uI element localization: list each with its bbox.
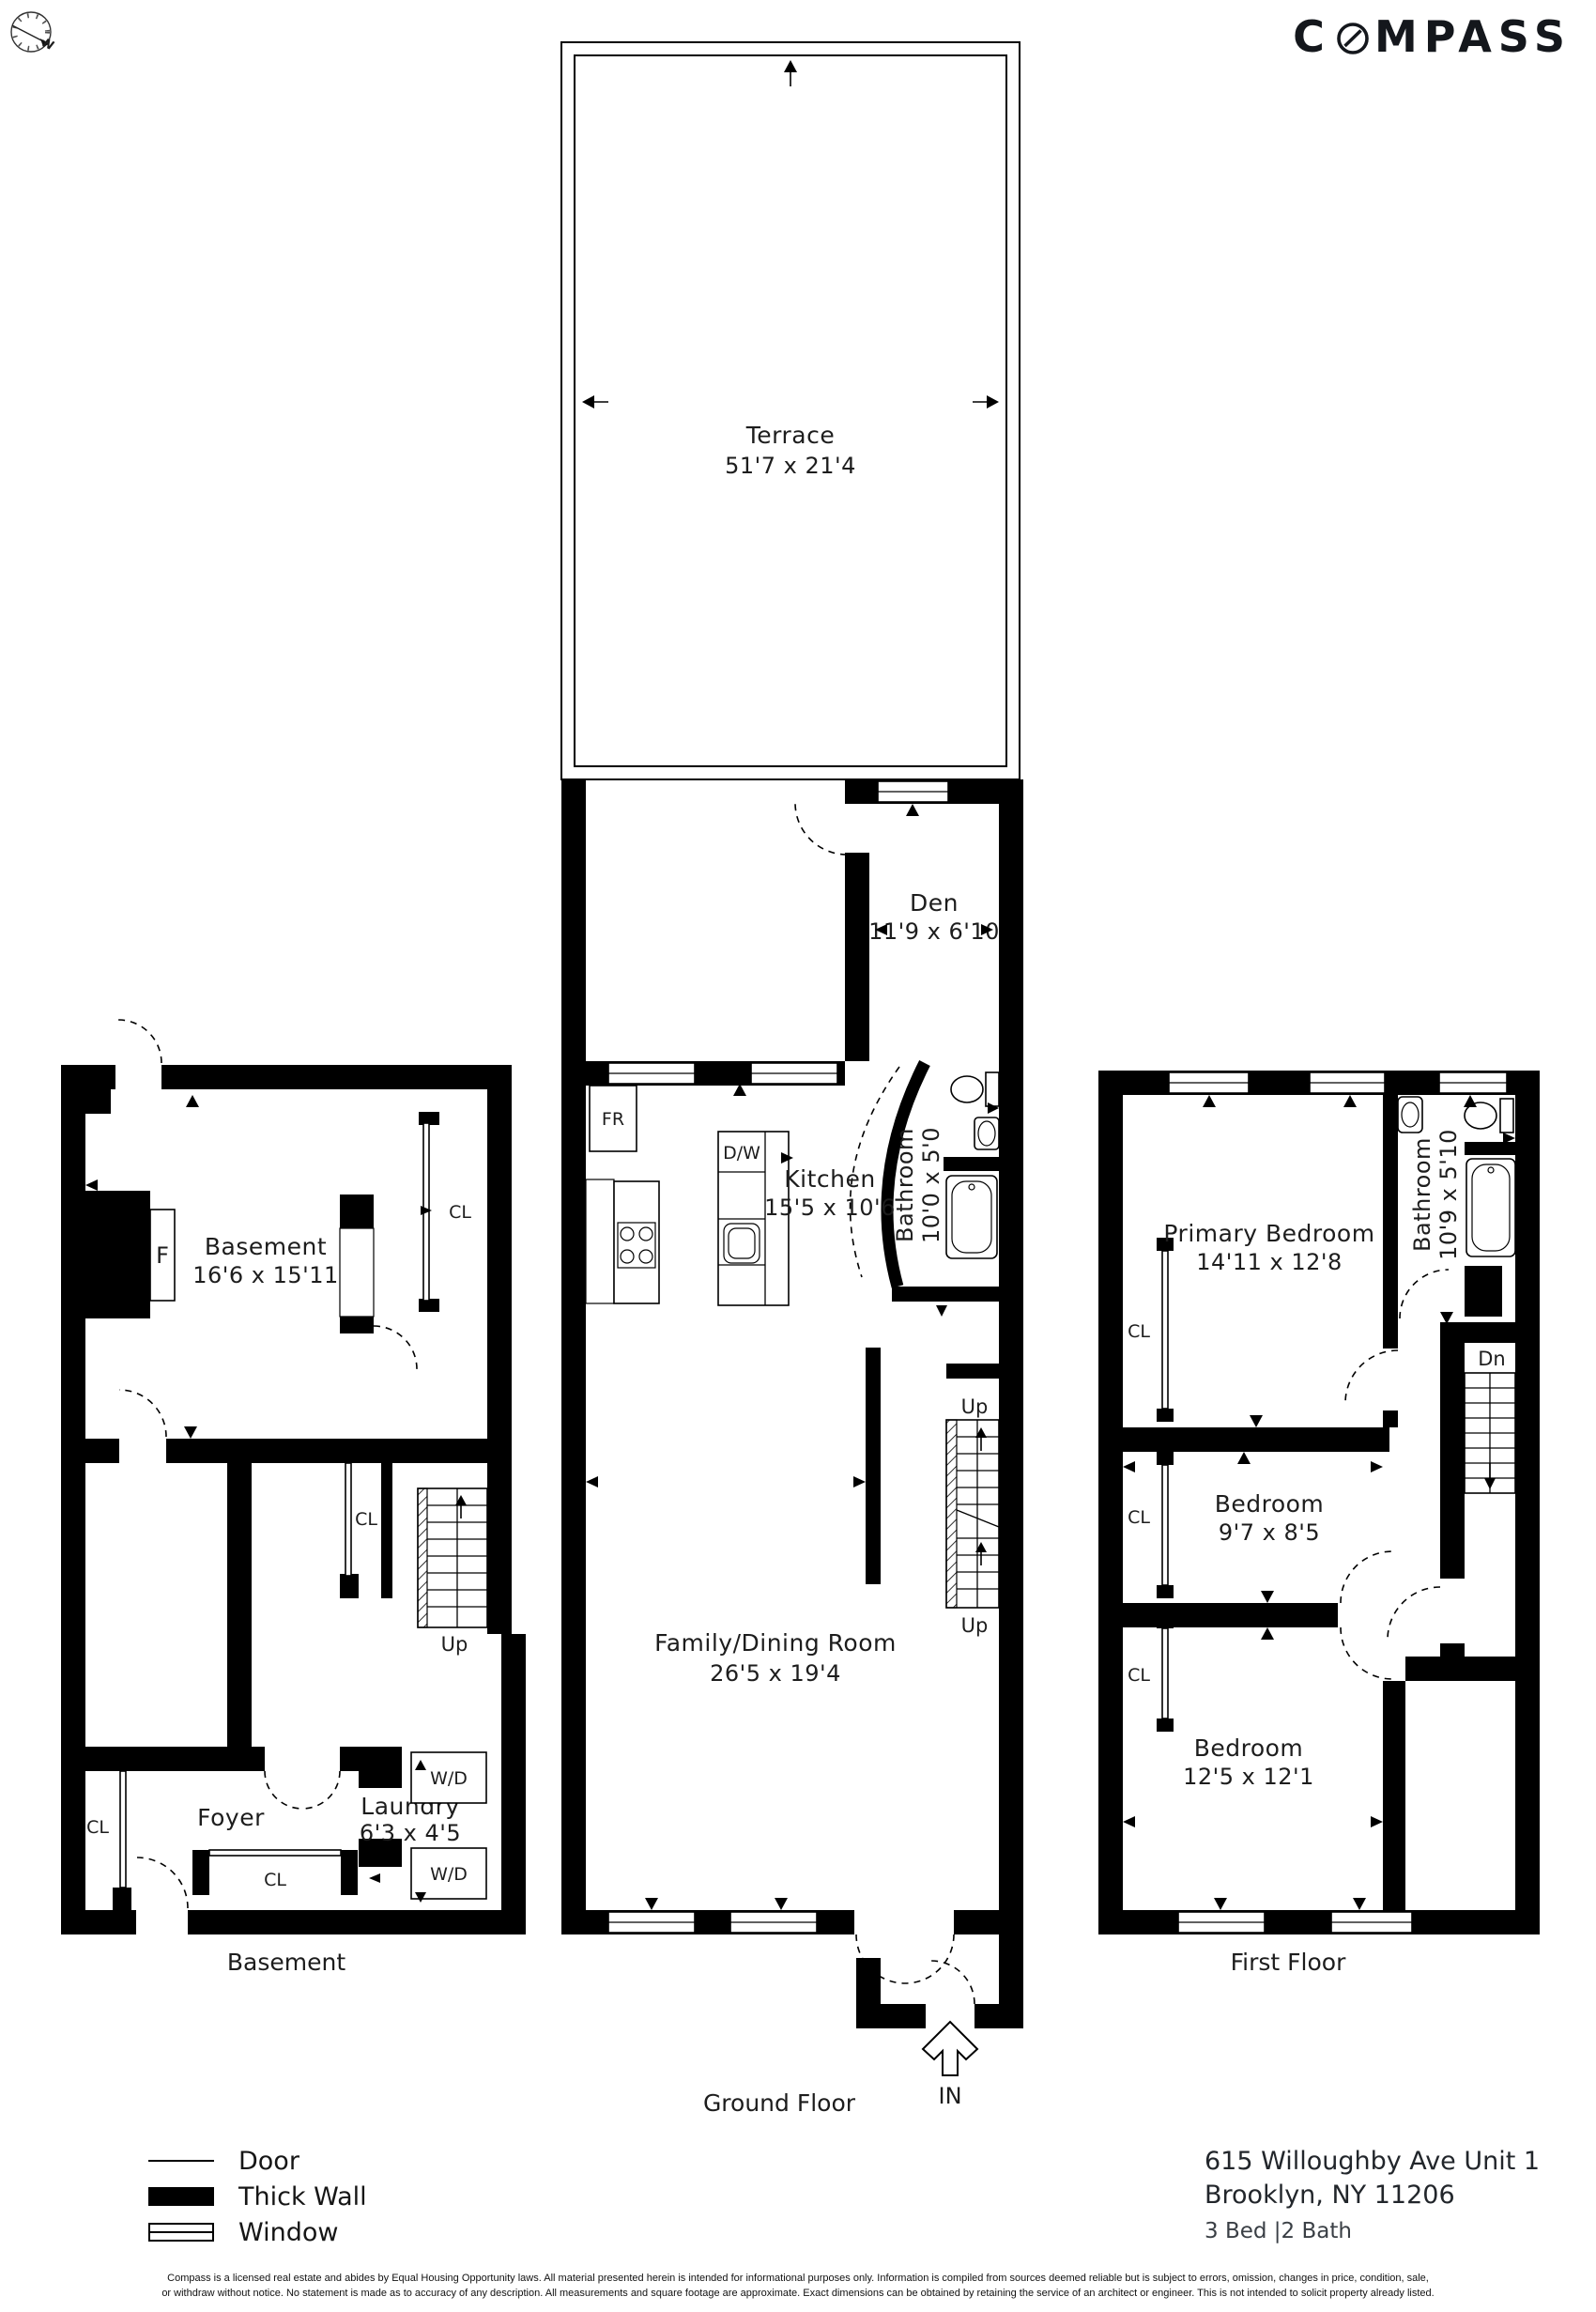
legend-item-thick-wall: Thick Wall — [148, 2179, 367, 2214]
first-floor-stairs: Dn — [1465, 1348, 1515, 1493]
legend: Door Thick Wall Window — [148, 2143, 367, 2250]
basement-stairs: Up — [418, 1488, 487, 1656]
thick-wall-symbol-icon — [148, 2187, 214, 2206]
bedroom3-label: Bedroom — [1194, 1734, 1304, 1762]
closet-label: CL — [1128, 1507, 1150, 1528]
north-label: N — [40, 37, 56, 54]
stairs-up-label: Up — [441, 1633, 468, 1656]
entry-in-label: IN — [938, 2083, 961, 2109]
legend-door-label: Door — [238, 2147, 299, 2176]
wd-label: W/D — [430, 1864, 468, 1885]
basement-title: Basement — [227, 1949, 345, 1976]
fireplace: F — [150, 1210, 175, 1301]
closet-door-line — [1162, 1251, 1168, 1719]
bathroom-sink-fixture — [974, 1117, 999, 1149]
address-line2: Brooklyn, NY 11206 — [1205, 2179, 1540, 2212]
address-line1: 615 Willoughby Ave Unit 1 — [1205, 2145, 1540, 2179]
sink-fixture — [724, 1224, 760, 1263]
closet-label: CL — [1128, 1665, 1150, 1686]
entry-arrow-icon — [923, 2022, 977, 2075]
floorplan-page: C MPASS N Terrace — [0, 0, 1596, 2312]
first-floor-title: First Floor — [1231, 1949, 1346, 1976]
door-arc — [795, 803, 974, 2004]
door-symbol-icon — [148, 2160, 214, 2162]
terrace-dims: 51'7 x 21'4 — [725, 453, 856, 479]
bathroom-sink-fixture — [1398, 1097, 1422, 1133]
disclaimer-line1: Compass is a licensed real estate and ab… — [0, 2271, 1596, 2286]
beds-baths: 3 Bed |2 Bath — [1205, 2214, 1540, 2248]
primary-bedroom-dims: 14'11 x 12'8 — [1196, 1249, 1343, 1275]
primary-bedroom-label: Primary Bedroom — [1163, 1220, 1374, 1247]
bedroom3-dims: 12'5 x 12'1 — [1183, 1764, 1314, 1790]
stairs-down-label: Dn — [1478, 1348, 1505, 1370]
legend-item-door: Door — [148, 2143, 367, 2179]
stairs-up-label: Up — [961, 1395, 989, 1418]
closet-label: CL — [264, 1870, 286, 1890]
laundry-dims: 6'3 x 4'5 — [360, 1820, 461, 1846]
stairs-up-label: Up — [961, 1614, 989, 1637]
ground-bathroom-dims: 10'0 x 5'0 — [918, 1127, 944, 1243]
ground-stairs: Up Up — [946, 1395, 999, 1637]
basement-plan: F — [61, 1020, 526, 1976]
dimension-arrow — [586, 1476, 866, 1910]
dimension-arrow — [582, 60, 999, 408]
wd-label: W/D — [430, 1768, 468, 1789]
stove-fixture — [614, 1181, 659, 1303]
legend-item-window: Window — [148, 2214, 367, 2250]
disclaimer: Compass is a licensed real estate and ab… — [0, 2271, 1596, 2301]
legend-thick-wall-label: Thick Wall — [238, 2182, 367, 2212]
bathtub-fixture — [946, 1176, 997, 1258]
bedroom2-dims: 9'7 x 8'5 — [1219, 1519, 1320, 1546]
first-floor-plan: Dn Primary Bedroom 14'11 x 12'8 Bathroom… — [1098, 1071, 1540, 1976]
den-dims: 11'9 x 6'10 — [868, 918, 1000, 945]
ground-floor-title: Ground Floor — [703, 2089, 856, 2117]
basement-room-dims: 16'6 x 15'11 — [192, 1262, 339, 1288]
bathtub-fixture — [1466, 1159, 1515, 1256]
closet-label: CL — [1128, 1321, 1150, 1342]
column — [340, 1228, 374, 1317]
family-room-label: Family/Dining Room — [654, 1629, 897, 1657]
first-bathroom-label: Bathroom — [1409, 1137, 1435, 1252]
terrace-outline — [561, 42, 1020, 779]
basement-room-label: Basement — [205, 1233, 327, 1260]
ground-floor-plan: Terrace 51'7 x 21'4 — [561, 42, 1023, 2117]
disclaimer-line2: or withdraw without notice. No statement… — [0, 2286, 1596, 2301]
fridge-label: FR — [602, 1109, 624, 1130]
toilet-fixture — [951, 1072, 999, 1106]
compass-rose-icon: N — [11, 12, 56, 54]
kitchen-label: Kitchen — [784, 1165, 875, 1193]
closet-label: CL — [449, 1202, 471, 1223]
closet-label: CL — [355, 1509, 377, 1530]
floor-plan-canvas: N Terrace 51'7 x 21'4 — [0, 0, 1596, 2312]
den-label: Den — [910, 889, 959, 917]
first-bathroom-dims: 10'9 x 5'10 — [1435, 1129, 1462, 1260]
legend-window-label: Window — [238, 2218, 338, 2247]
window-symbol — [608, 781, 948, 1933]
ground-walls — [561, 779, 1023, 2028]
kitchen-dims: 15'5 x 10'6 — [764, 1195, 896, 1221]
closet-label: CL — [86, 1817, 109, 1838]
fireplace-label: F — [156, 1242, 169, 1269]
window-symbol-icon — [148, 2223, 214, 2242]
dishwasher-label: D/W — [723, 1143, 760, 1164]
terrace-label: Terrace — [745, 422, 835, 449]
property-address: 615 Willoughby Ave Unit 1 Brooklyn, NY 1… — [1205, 2145, 1540, 2248]
ground-bathroom-label: Bathroom — [892, 1128, 918, 1242]
foyer-label: Foyer — [197, 1804, 265, 1831]
bedroom2-label: Bedroom — [1215, 1490, 1325, 1518]
family-room-dims: 26'5 x 19'4 — [710, 1660, 841, 1687]
